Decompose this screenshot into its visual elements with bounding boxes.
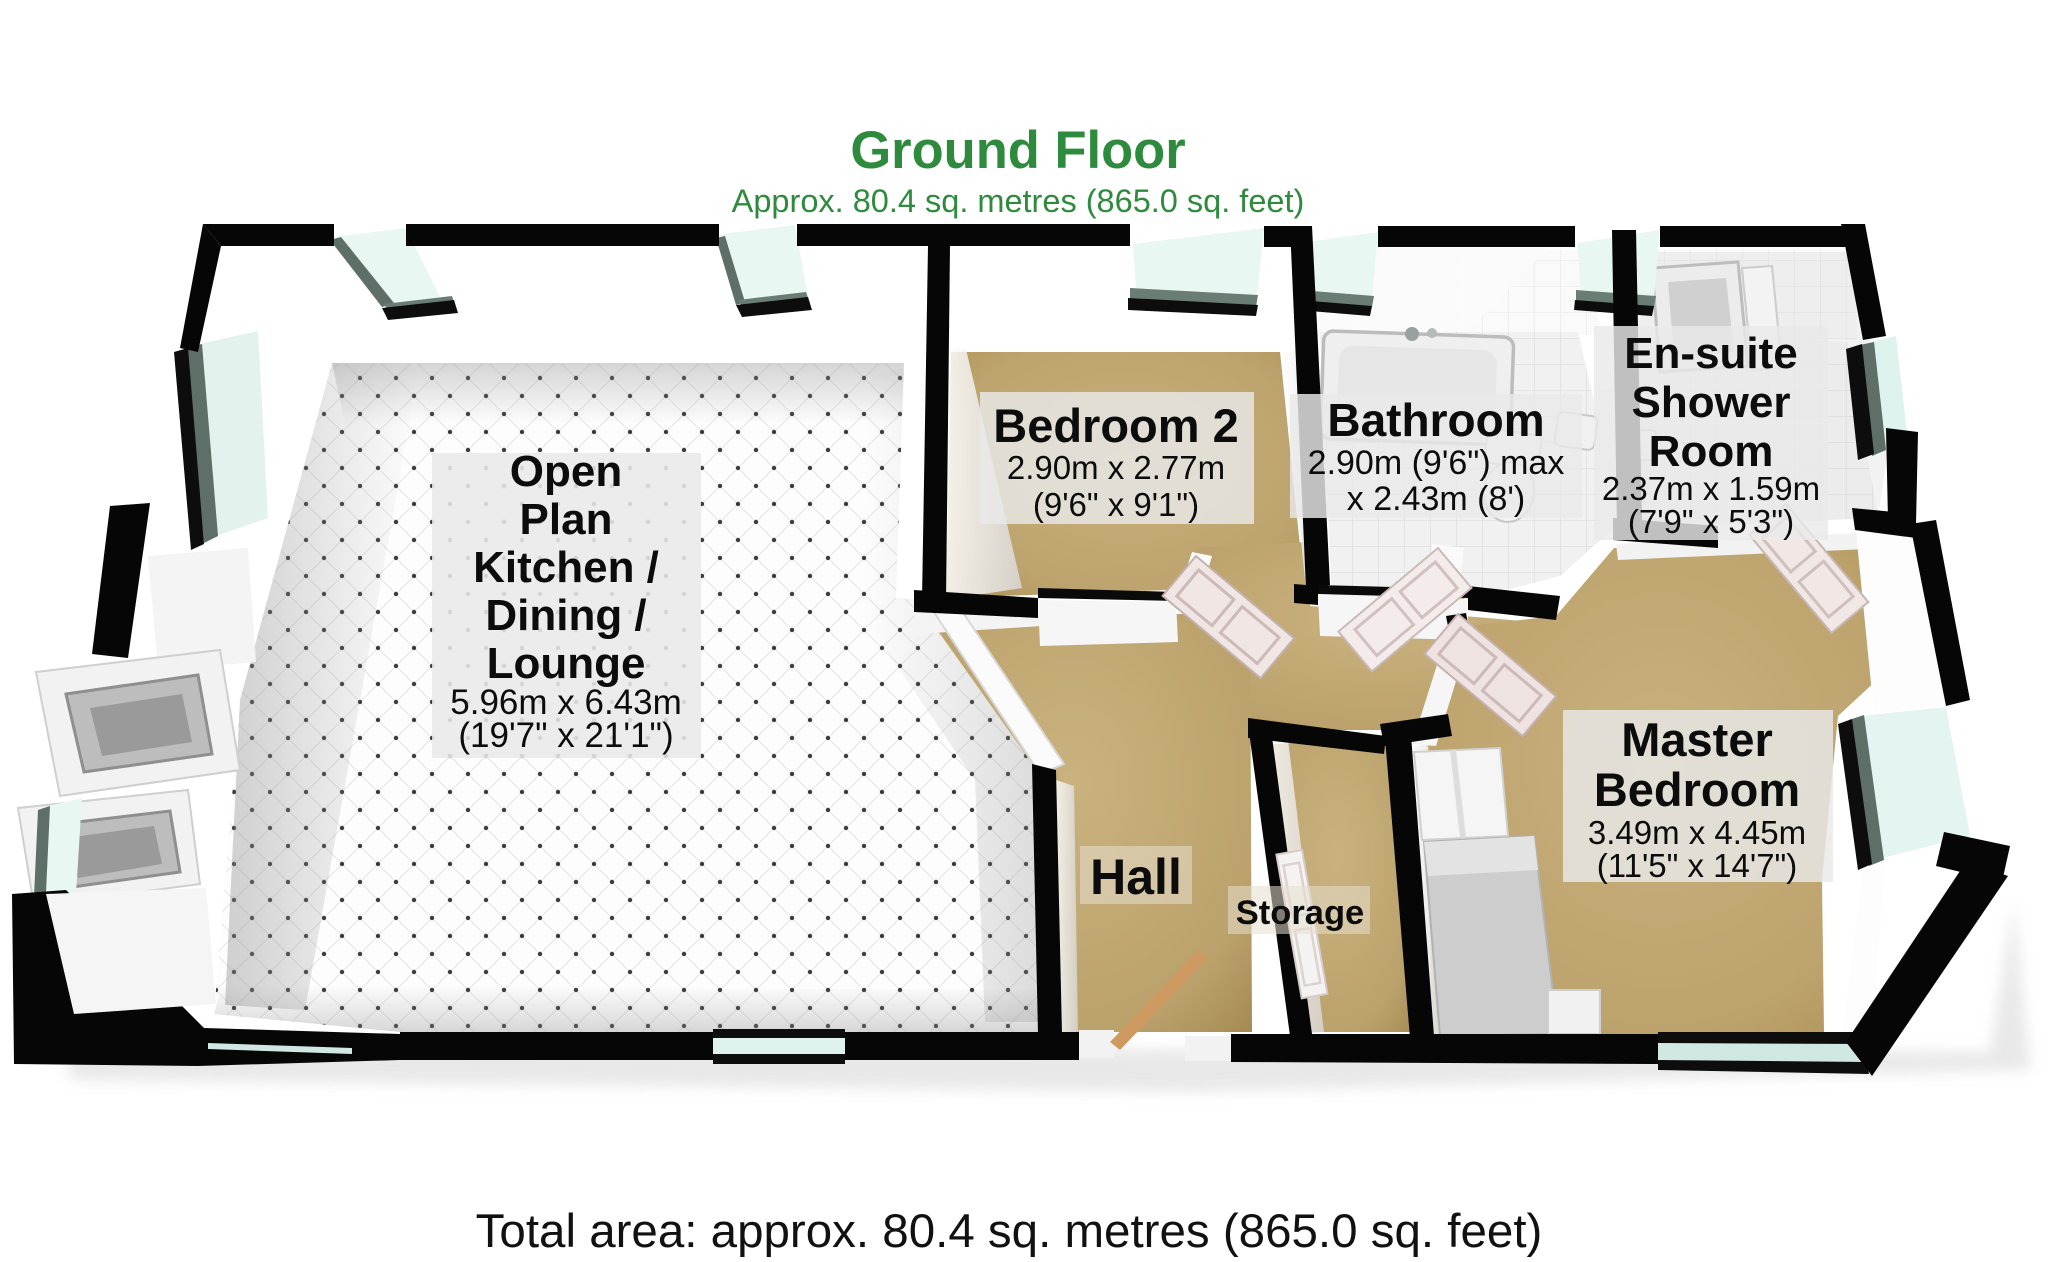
- svg-text:Ground Floor: Ground Floor: [850, 121, 1185, 180]
- svg-text:(19'7" x 21'1"): (19'7" x 21'1"): [458, 716, 673, 755]
- svg-text:2.37m x 1.59m: 2.37m x 1.59m: [1602, 470, 1820, 507]
- svg-text:Hall: Hall: [1090, 849, 1182, 905]
- svg-text:Lounge: Lounge: [487, 639, 646, 688]
- svg-text:Bedroom: Bedroom: [1594, 763, 1800, 816]
- svg-text:2.90m (9'6") max: 2.90m (9'6") max: [1308, 444, 1565, 482]
- svg-text:Bedroom 2: Bedroom 2: [993, 399, 1239, 452]
- svg-text:Open: Open: [510, 447, 622, 496]
- svg-text:En-suite: En-suite: [1624, 329, 1798, 378]
- svg-text:2.90m x 2.77m: 2.90m x 2.77m: [1007, 449, 1225, 486]
- svg-text:(11'5" x 14'7"): (11'5" x 14'7"): [1597, 847, 1798, 884]
- svg-text:Total area: approx. 80.4 sq. m: Total area: approx. 80.4 sq. metres (865…: [476, 1205, 1543, 1258]
- svg-text:Approx. 80.4 sq. metres (865.0: Approx. 80.4 sq. metres (865.0 sq. feet): [732, 183, 1305, 219]
- svg-text:Room: Room: [1649, 427, 1774, 476]
- svg-text:(7'9" x 5'3"): (7'9" x 5'3"): [1628, 503, 1794, 540]
- svg-text:Storage: Storage: [1236, 894, 1364, 932]
- svg-text:Dining /: Dining /: [485, 591, 646, 640]
- svg-text:(9'6" x 9'1"): (9'6" x 9'1"): [1033, 486, 1199, 523]
- svg-text:3.49m x 4.45m: 3.49m x 4.45m: [1588, 814, 1806, 851]
- svg-text:x 2.43m (8'): x 2.43m (8'): [1347, 480, 1525, 518]
- svg-text:Master: Master: [1621, 713, 1773, 766]
- svg-text:Shower: Shower: [1632, 378, 1791, 427]
- svg-text:Plan: Plan: [520, 495, 613, 544]
- svg-text:Bathroom: Bathroom: [1327, 394, 1544, 446]
- svg-text:Kitchen /: Kitchen /: [473, 543, 659, 592]
